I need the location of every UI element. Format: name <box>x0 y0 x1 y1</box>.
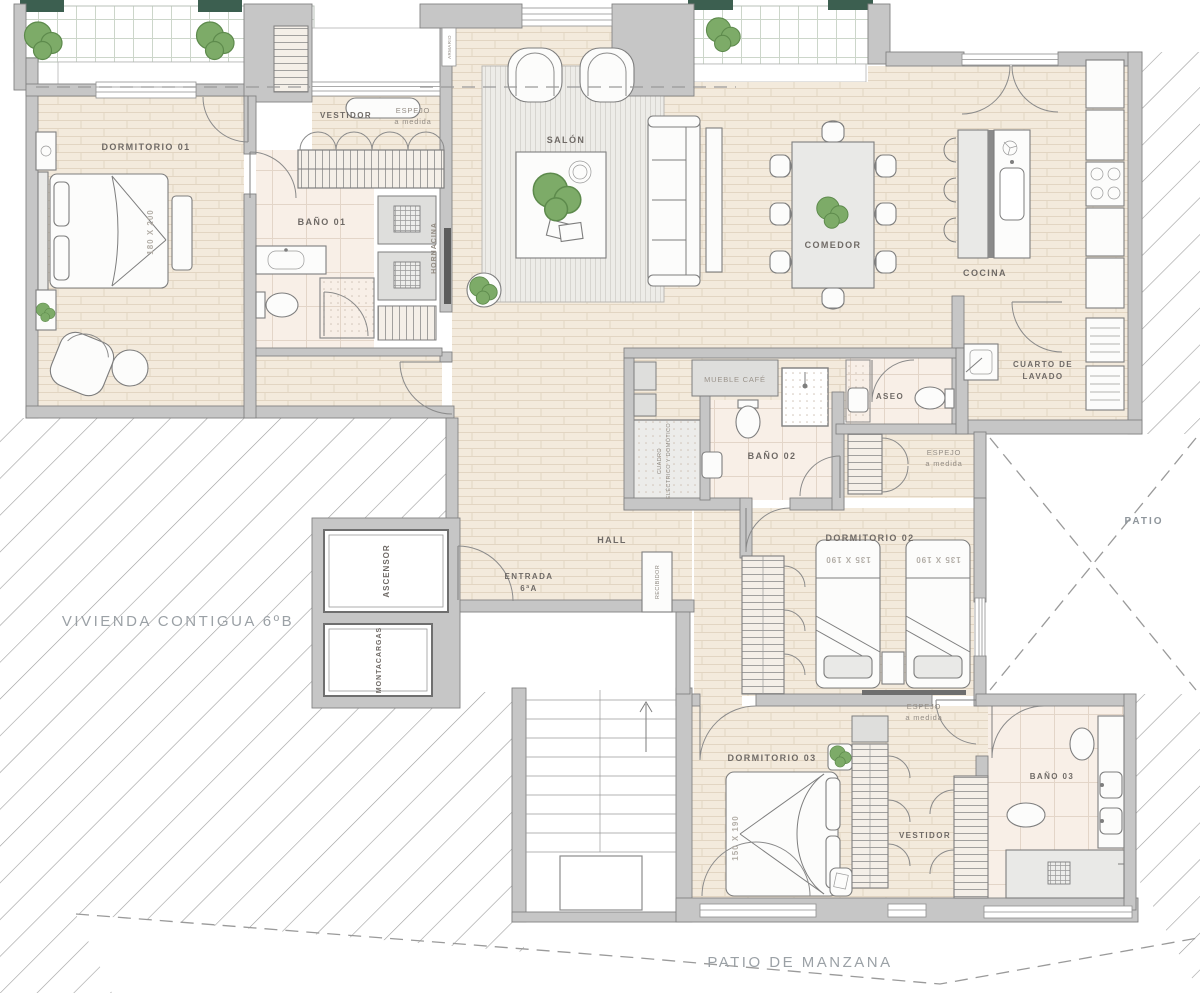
recibidor-console: RECIBIDOR <box>642 552 672 612</box>
room-label-vestidor2: VESTIDOR <box>899 831 951 840</box>
window <box>522 8 612 26</box>
room-label-vestidor1: VESTIDOR <box>320 111 372 120</box>
laundry-sink-icon <box>964 344 998 380</box>
armchair-icon <box>508 48 562 102</box>
sofa-icon <box>648 116 700 286</box>
planter-icon <box>198 0 242 12</box>
label-patio: PATIO <box>1124 516 1163 527</box>
vanity-icon <box>256 246 326 274</box>
bed-dim-180x200: 180 X 200 <box>146 209 155 254</box>
mirror-strip <box>862 690 966 695</box>
window <box>700 904 816 917</box>
nightstand-icon <box>830 868 852 896</box>
toilet-tank-icon <box>256 292 265 318</box>
room-label-bano02: BAÑO 02 <box>748 451 797 461</box>
room-label-dormitorio03: DORMITORIO 03 <box>727 753 816 763</box>
label-cuadro-2: ELÉCTRICO Y DOMÓTICO <box>665 423 672 500</box>
floor-plan-page: ASCENSOR MONTACARGAS <box>0 0 1200 993</box>
label-hornacina: HORNACINA <box>431 222 438 274</box>
floor-corridor <box>694 498 742 706</box>
bed-dim-135x190-b: 135 X 190 <box>915 555 960 564</box>
room-label-dormitorio02: DORMITORIO 02 <box>825 533 914 543</box>
armchair-icon <box>580 48 634 102</box>
window <box>984 906 1132 918</box>
window <box>975 598 985 656</box>
washer-icon <box>1086 318 1124 362</box>
bed-dim-135x190-a: 135 X 190 <box>825 555 870 564</box>
room-label-lavado-2: LAVADO <box>1023 372 1064 381</box>
window <box>96 82 196 98</box>
hornacina-cabinet-icon <box>378 196 436 340</box>
cooktop-icon <box>1086 162 1124 206</box>
room-label-salon: SALÓN <box>547 134 586 145</box>
toilet-icon <box>915 387 945 409</box>
dryer-icon <box>1086 366 1124 410</box>
planter-icon <box>688 0 733 10</box>
floor-plan-canvas: ASCENSOR MONTACARGAS <box>0 0 1200 993</box>
window <box>888 904 926 917</box>
shower-icon <box>320 278 374 338</box>
planter-icon <box>20 0 64 12</box>
ascensor-label: ASCENSOR <box>382 544 391 597</box>
cabinet-icon <box>634 394 656 416</box>
toilet-icon <box>736 406 760 438</box>
hatch-region-right-top <box>1142 52 1200 434</box>
room-label-cocina: COCINA <box>963 268 1007 278</box>
label-entrada-1: ENTRADA <box>505 572 554 581</box>
label-entrada-2: 6ªA <box>520 584 537 593</box>
bed-dim-150x190: 150 X 190 <box>731 815 740 860</box>
room-label-hall: HALL <box>597 535 627 545</box>
label-amedida-1: a medida <box>394 117 431 126</box>
planter-icon <box>828 0 873 10</box>
recibidor-label: RECIBIDOR <box>655 565 661 599</box>
label-amedida-2: a medida <box>925 459 962 468</box>
sink-icon <box>702 452 722 478</box>
room-label-comedor: COMEDOR <box>805 240 862 250</box>
bed-third-icon <box>726 772 840 896</box>
kitchen-appliance-column <box>1086 60 1124 308</box>
room-label-bano03: BAÑO 03 <box>1030 772 1074 781</box>
room-label-lavado-1: CUARTO DE <box>1013 360 1073 369</box>
stair-landing <box>446 612 690 692</box>
label-amedida-3: a medida <box>905 713 942 722</box>
label-mueble-cafe: MUEBLE CAFÉ <box>704 375 766 384</box>
tv-icon <box>444 228 451 304</box>
bidet-icon <box>1007 803 1045 827</box>
label-patio-manzana: PATIO DE MANZANA <box>707 954 892 971</box>
label-cuadro-1: CUADRO <box>657 448 663 475</box>
elevator-montacargas: MONTACARGAS <box>324 624 432 696</box>
room-label-bano01: BAÑO 01 <box>298 217 347 227</box>
label-vivienda-contigua: VIVIENDA CONTIGUA 6ºB <box>62 613 294 630</box>
cabinet-icon <box>634 362 656 390</box>
elevator-ascensor: ASCENSOR <box>324 530 448 612</box>
window <box>962 54 1058 65</box>
console-table-icon <box>706 128 722 272</box>
toilet-icon <box>1070 728 1094 760</box>
label-espejo-1: ESPEJO <box>396 106 430 115</box>
montacargas-label: MONTACARGAS <box>376 627 383 693</box>
armario-niche: ARMARIO <box>442 28 456 66</box>
room-label-dormitorio01: DORMITORIO 01 <box>101 142 190 152</box>
louver-unit-icon <box>274 26 308 92</box>
hatch-region-right-bottom <box>1128 694 1200 993</box>
terrace-bench-right <box>694 64 866 82</box>
room-label-aseo: ASEO <box>876 392 904 401</box>
window <box>312 82 440 96</box>
armario-label: ARMARIO <box>447 35 452 59</box>
nightstand-icon <box>882 652 904 684</box>
shower-icon <box>1006 850 1124 898</box>
sink-icon <box>848 388 868 412</box>
toilet-icon <box>266 293 298 317</box>
label-espejo-2: ESPEJO <box>927 448 961 457</box>
label-espejo-3: ESPEJO <box>907 702 941 711</box>
